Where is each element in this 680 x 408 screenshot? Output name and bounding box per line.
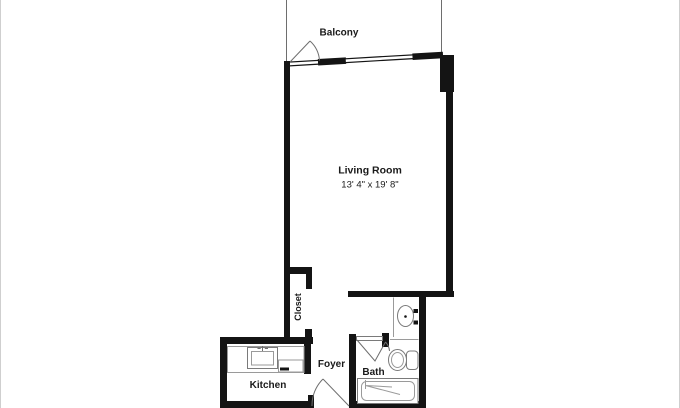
foyer-label: Foyer [318,359,345,370]
wall-bottom-left [220,401,314,408]
wall-closet-right-upper [306,267,312,289]
wall-kitchen-top [220,337,313,344]
bath-doorway-threshold [357,337,383,341]
wall-kitchen-right [304,337,311,374]
balcony-door-arc [310,41,320,61]
living-room-dimensions: 13' 4" x 19' 8" [341,180,398,191]
floorplan-drawing: Balcony [1,0,680,408]
wall-segment-window-left [318,61,346,63]
bath-sink-handle-icon [414,321,419,325]
entry-door-leaf [323,379,349,406]
living-room-label: Living Room [338,165,402,177]
balcony-window-wall [287,41,443,64]
balcony-area: Balcony [287,0,442,61]
balcony-label: Balcony [320,28,359,39]
wall-bath-right [419,295,426,408]
floorplan-canvas: Balcony [0,0,680,408]
foyer-area: Foyer [312,359,349,406]
wall-bath-left [349,334,356,408]
closet-area: Closet [293,293,303,321]
wall-left [284,61,290,344]
kitchen-label: Kitchen [250,380,287,391]
wall-segment-window-right [413,55,444,57]
wall-living-room-bottom [348,291,454,297]
living-room-area: Living Room 13' 4" x 19' 8" [338,165,402,191]
bath-sink-drain [404,315,407,318]
kitchen-area: Kitchen [228,346,305,391]
window-left-glass [288,62,319,64]
bath-label: Bath [362,367,384,378]
closet-label: Closet [293,293,303,321]
toilet-tank [407,351,419,370]
balcony-door-leaf [290,41,310,62]
bath-area: Bath [357,298,419,404]
wall-right-living-room [446,57,453,297]
wall-kitchen-left [220,337,227,408]
bath-sink-faucet-icon [414,309,419,313]
dishwasher-handle [280,368,289,371]
bath-door-leaf [357,340,386,361]
